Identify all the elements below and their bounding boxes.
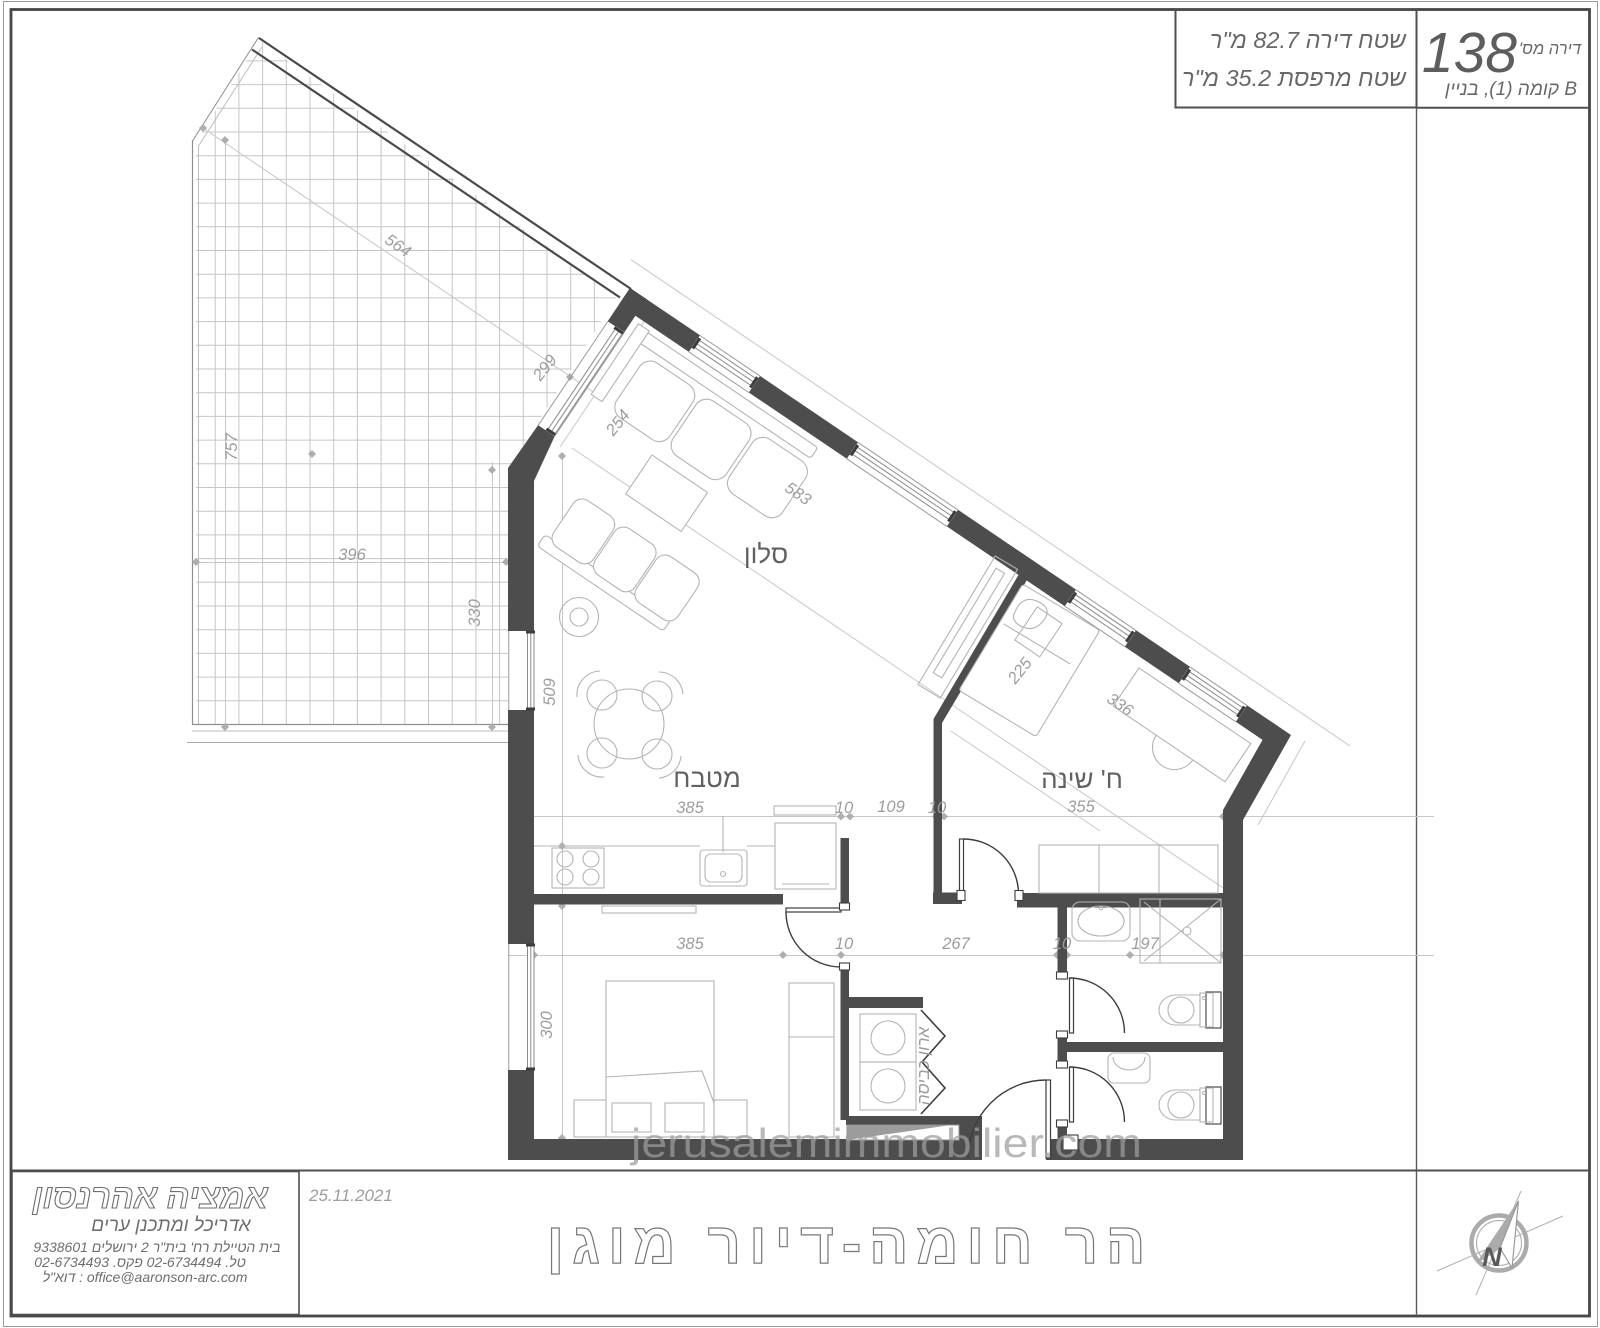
svg-text:267: 267 [941, 935, 970, 953]
svg-text:330: 330 [466, 598, 484, 626]
svg-text:385: 385 [676, 935, 704, 953]
svg-text:N: N [1482, 1242, 1502, 1272]
svg-text:בית הטיילת רח' בית"ר 2 ירוש: בית הטיילת רח' בית"ר 2 ירושלים 9338601 [33, 1239, 280, 1255]
svg-text:ארון כביסה: ארון כביסה [914, 1027, 933, 1106]
svg-text:300: 300 [538, 1010, 556, 1038]
svg-text:138: 138 [1422, 21, 1517, 85]
svg-text:385: 385 [676, 799, 704, 817]
svg-text:אמציה אהרנסון: אמציה אהרנסון [31, 1178, 268, 1216]
svg-text:757: 757 [223, 432, 241, 460]
svg-text:דוא"ל : office@aaronson-arc.: דוא"ל : office@aaronson-arc.com [43, 1269, 248, 1285]
svg-text:10: 10 [835, 799, 854, 817]
svg-text:197: 197 [1131, 935, 1159, 953]
svg-text:jerusalemimmobilier.com: jerusalemimmobilier.com [630, 1120, 1142, 1166]
svg-text:25.11.2021: 25.11.2021 [308, 1186, 393, 1205]
svg-text:טל. 02-6734494 פקס. 02-6734493: טל. 02-6734494 פקס. 02-6734493 [34, 1254, 246, 1270]
svg-text:355: 355 [1067, 798, 1095, 816]
svg-text:הר חומה-דיור מוגן: הר חומה-דיור מוגן [547, 1211, 1154, 1276]
svg-text:שטח דירה 82.7 מ"ר: שטח דירה 82.7 מ"ר [1210, 27, 1407, 53]
svg-text:ח' שינה: ח' שינה [1041, 764, 1123, 794]
svg-text:דירה מס'‏: דירה מס'‏ [1519, 40, 1582, 58]
svg-text:10: 10 [928, 799, 947, 817]
svg-text:509: 509 [541, 678, 559, 706]
svg-text:396: 396 [338, 546, 366, 564]
svg-text:קומה (1), בניין B: קומה (1), בניין B [1444, 79, 1577, 100]
svg-text:109: 109 [877, 798, 905, 816]
svg-text:10: 10 [1053, 935, 1072, 953]
svg-text:שטח מרפסת 35.2 מ"ר: שטח מרפסת 35.2 מ"ר [1182, 65, 1407, 91]
svg-text:מטבח: מטבח [673, 763, 741, 793]
svg-text:10: 10 [835, 935, 854, 953]
svg-text:אדריכל ומתכנן ערים: אדריכל ומתכנן ערים [91, 1215, 252, 1236]
svg-text:סלון: סלון [744, 539, 788, 569]
